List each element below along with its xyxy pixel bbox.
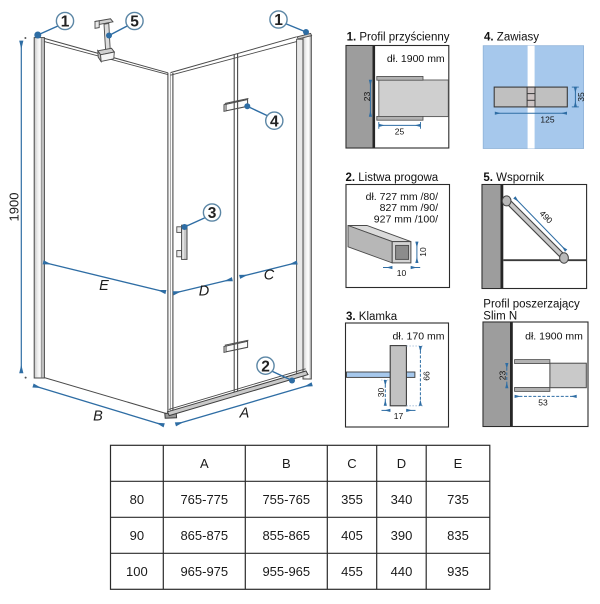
svg-text:340: 340 [391,492,413,507]
svg-text:935: 935 [447,564,469,579]
svg-text:90: 90 [130,528,144,543]
svg-text:53: 53 [538,398,548,408]
svg-text:dł. 170 mm: dł. 170 mm [393,331,445,343]
svg-text:735: 735 [447,492,469,507]
svg-text:3. Klamka: 3. Klamka [346,311,398,323]
svg-text:35: 35 [576,92,586,102]
svg-text:10: 10 [418,247,428,257]
svg-text:1: 1 [274,12,283,29]
svg-text:955-965: 955-965 [262,564,310,579]
svg-text:100: 100 [126,564,148,579]
svg-text:440: 440 [391,564,413,579]
svg-text:dł. 1900 mm: dł. 1900 mm [387,53,445,65]
svg-text:865-875: 865-875 [180,528,228,543]
svg-text:455: 455 [341,564,363,579]
svg-text:835: 835 [447,528,469,543]
svg-text:A: A [200,456,209,471]
svg-text:3: 3 [208,205,217,222]
svg-text:Profil poszerzający: Profil poszerzający [483,299,580,311]
svg-text:390: 390 [391,528,413,543]
svg-text:855-865: 855-865 [262,528,310,543]
svg-text:80: 80 [130,492,144,507]
svg-text:755-765: 755-765 [262,492,310,507]
svg-text:66: 66 [421,371,431,381]
svg-text:B: B [93,409,103,425]
svg-text:A: A [239,406,250,422]
svg-text:827 mm /90/: 827 mm /90/ [380,202,438,214]
svg-text:23: 23 [498,371,508,381]
svg-text:965-975: 965-975 [180,564,228,579]
svg-text:30: 30 [376,388,386,398]
svg-text:D: D [199,284,209,300]
svg-text:4: 4 [270,113,279,130]
svg-text:E: E [99,278,109,294]
svg-text:10: 10 [397,268,407,278]
svg-text:dł. 1900 mm: dł. 1900 mm [525,331,583,343]
svg-text:17: 17 [394,411,404,421]
svg-text:Slim N: Slim N [483,311,517,323]
svg-text:B: B [282,456,291,471]
svg-text:2. Listwa progowa: 2. Listwa progowa [346,172,439,184]
svg-text:23: 23 [362,92,372,102]
svg-text:D: D [397,456,406,471]
svg-text:927 mm /100/: 927 mm /100/ [374,213,438,225]
svg-text:C: C [264,268,275,284]
svg-text:dł. 727 mm /80/: dł. 727 mm /80/ [366,191,438,203]
svg-text:1: 1 [61,14,70,31]
svg-text:5. Wspornik: 5. Wspornik [483,172,544,184]
svg-text:2: 2 [261,358,270,375]
svg-text:E: E [454,456,463,471]
svg-text:765-775: 765-775 [180,492,228,507]
svg-text:1900: 1900 [7,193,22,222]
svg-text:4. Zawiasy: 4. Zawiasy [484,32,539,44]
svg-text:C: C [347,456,356,471]
svg-text:1. Profil przyścienny: 1. Profil przyścienny [347,32,450,44]
svg-text:355: 355 [341,492,363,507]
svg-text:125: 125 [540,115,554,125]
svg-text:25: 25 [395,127,405,137]
svg-text:5: 5 [130,14,139,31]
svg-text:405: 405 [341,528,363,543]
